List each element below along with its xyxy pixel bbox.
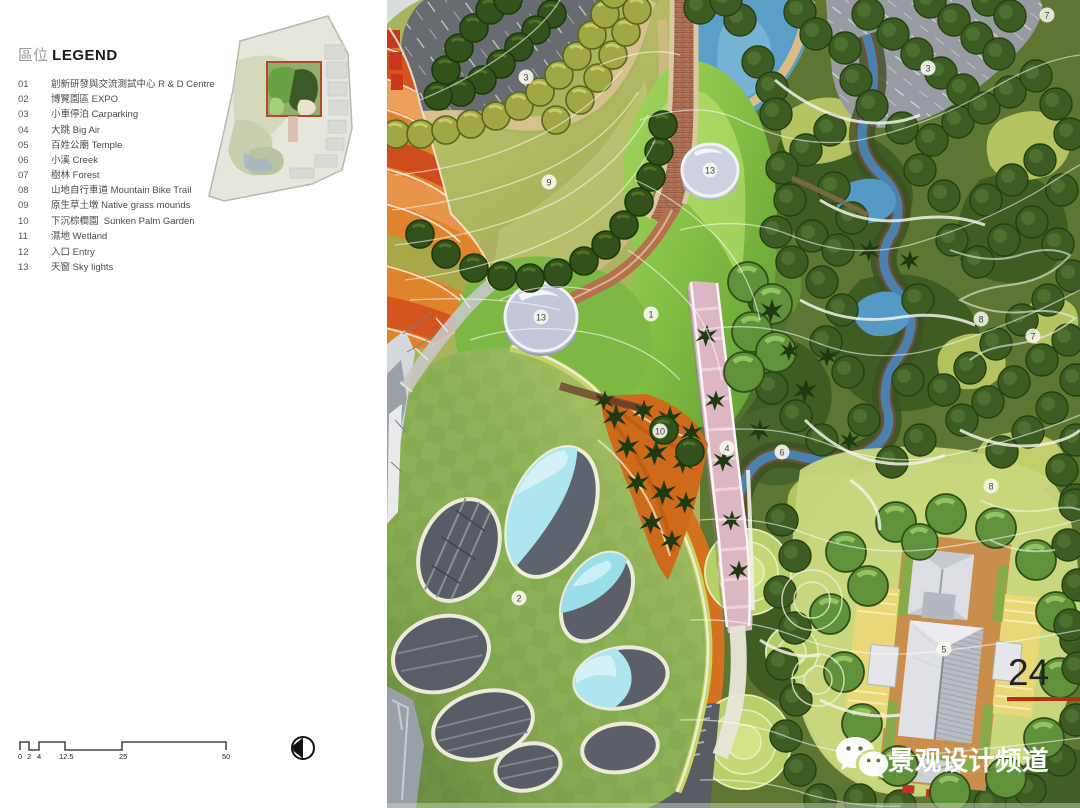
svg-text:3: 3 [523, 73, 528, 83]
svg-text:7: 7 [1030, 332, 1035, 342]
svg-text:3: 3 [925, 64, 930, 74]
svg-text:景观设计频道: 景观设计频道 [888, 746, 1049, 776]
svg-text:12.5: 12.5 [59, 752, 74, 761]
svg-text:2: 2 [27, 752, 31, 761]
svg-text:50: 50 [222, 752, 230, 761]
svg-text:6: 6 [779, 448, 784, 458]
svg-text:7: 7 [1044, 11, 1049, 21]
svg-text:8: 8 [988, 482, 993, 492]
svg-text:25: 25 [119, 752, 127, 761]
svg-text:4: 4 [724, 444, 729, 454]
svg-text:10: 10 [655, 427, 665, 437]
svg-text:0: 0 [18, 752, 22, 761]
svg-text:8: 8 [978, 315, 983, 325]
svg-text:9: 9 [546, 178, 551, 188]
svg-text:4: 4 [37, 752, 41, 761]
svg-text:13: 13 [536, 313, 546, 323]
svg-text:13: 13 [705, 166, 715, 176]
svg-text:2: 2 [516, 594, 521, 604]
svg-text:5: 5 [941, 645, 946, 655]
svg-text:1: 1 [648, 310, 653, 320]
